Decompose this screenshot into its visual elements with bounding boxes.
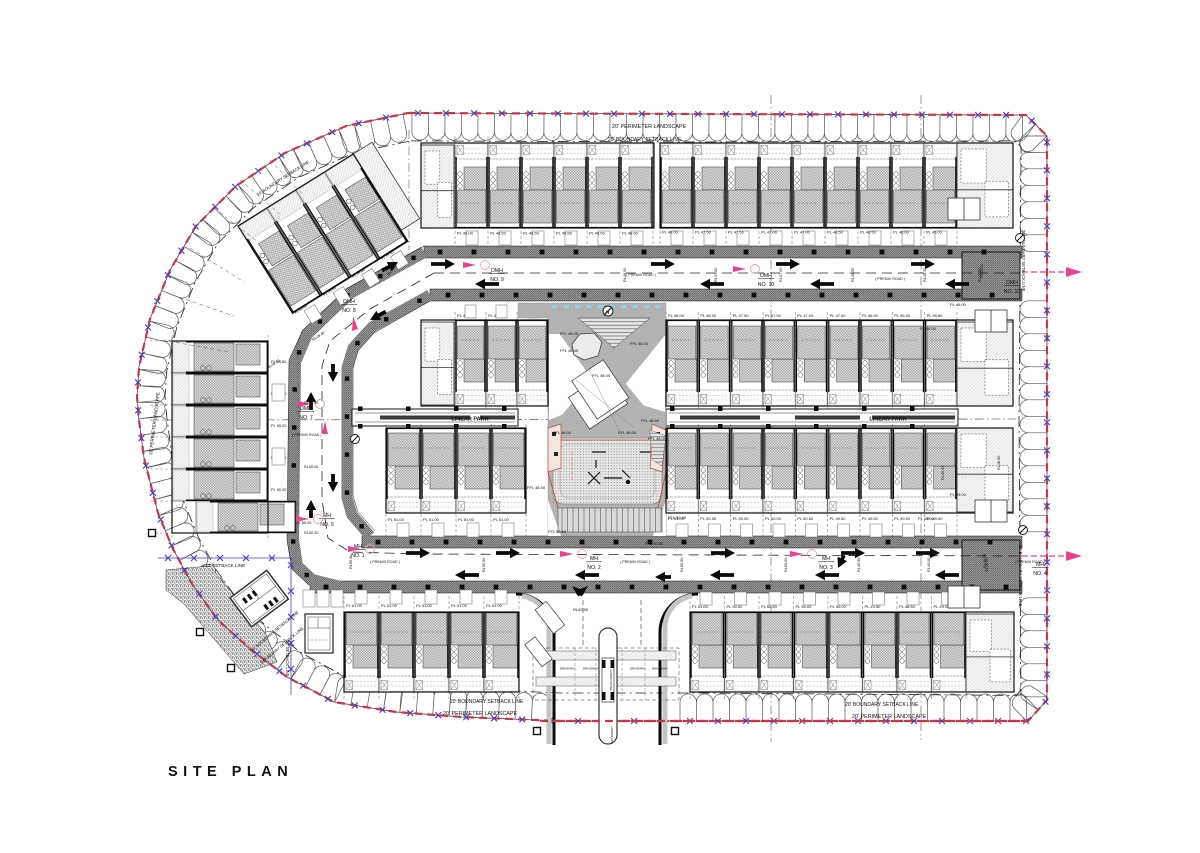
svg-text:LANDSCAPE: LANDSCAPE xyxy=(610,727,614,744)
svg-text:PL 46.50: PL 46.50 xyxy=(860,230,877,235)
svg-text:PL 48.50: PL 48.50 xyxy=(556,231,573,236)
svg-text:PL 46.50: PL 46.50 xyxy=(894,313,911,318)
svg-text:DRIVEWAY: DRIVEWAY xyxy=(652,667,668,671)
svg-text:PL 50.20: PL 50.20 xyxy=(271,423,287,428)
svg-text:20' BOUNDARY SETBACK LINE: 20' BOUNDARY SETBACK LINE xyxy=(608,137,682,143)
svg-text:PL 48.50: PL 48.50 xyxy=(589,231,606,236)
svg-text:RL49.80: RL49.80 xyxy=(304,401,318,405)
svg-text:FFL 50.50: FFL 50.50 xyxy=(645,541,664,546)
svg-text:DRIVEWAY: DRIVEWAY xyxy=(560,667,576,671)
svg-text:PL 45.00: PL 45.00 xyxy=(926,230,943,235)
svg-text:20' BOUNDARY SETBACK LINE: 20' BOUNDARY SETBACK LINE xyxy=(450,699,524,705)
svg-text:PL 47.50: PL 47.50 xyxy=(695,230,712,235)
svg-text:LINEAR PARK: LINEAR PARK xyxy=(869,417,906,423)
svg-text:PL 49.00: PL 49.00 xyxy=(894,516,911,521)
svg-text:PL 51.00: PL 51.00 xyxy=(458,517,475,522)
svg-text:PL 48.50: PL 48.50 xyxy=(523,231,540,236)
svg-text:PL 51.00: PL 51.00 xyxy=(423,517,440,522)
svg-text:RL50.00: RL50.00 xyxy=(304,465,318,469)
svg-text:PL 49.00: PL 49.00 xyxy=(950,492,967,497)
svg-text:FFL 48.00: FFL 48.00 xyxy=(553,430,572,435)
svg-text:RL49.00: RL49.00 xyxy=(927,558,931,572)
svg-text:PL 48.00: PL 48.00 xyxy=(700,313,717,318)
svg-text:FFL 48.00: FFL 48.00 xyxy=(648,436,667,441)
svg-text:RL50.50: RL50.50 xyxy=(482,558,486,572)
svg-text:PL 50.50: PL 50.50 xyxy=(700,516,717,521)
svg-text:DMH: DMH xyxy=(760,273,772,279)
svg-text:LINEAR PARK: LINEAR PARK xyxy=(451,417,488,423)
svg-text:FFL 50.50: FFL 50.50 xyxy=(548,529,567,534)
svg-text:PL 46.50: PL 46.50 xyxy=(862,313,879,318)
svg-text:20' BOUNDARY SETBACK LINE: 20' BOUNDARY SETBACK LINE xyxy=(1018,545,1023,607)
svg-text:FFL 48.45: FFL 48.45 xyxy=(560,348,579,353)
svg-text:NO. 10: NO. 10 xyxy=(758,282,775,288)
svg-text:PL 50.50: PL 50.50 xyxy=(733,516,750,521)
svg-text:FFL 48.00: FFL 48.00 xyxy=(630,341,649,346)
svg-text:FFL 48.00: FFL 48.00 xyxy=(527,485,546,490)
svg-text:PL 46.00: PL 46.00 xyxy=(893,230,910,235)
svg-text:PL 47.00: PL 47.00 xyxy=(830,313,847,318)
svg-text:RL50.30: RL50.30 xyxy=(304,531,318,535)
svg-text:20' PERIMETER LANDSCAPE: 20' PERIMETER LANDSCAPE xyxy=(443,711,518,717)
svg-text:( PREMIX ROAD ): ( PREMIX ROAD ) xyxy=(875,277,905,281)
svg-text:PL 46.00: PL 46.00 xyxy=(950,302,967,307)
svg-text:DRIVEWAY: DRIVEWAY xyxy=(630,667,646,671)
svg-text:RL48.00: RL48.00 xyxy=(623,268,627,282)
svg-text:PL 50.00: PL 50.00 xyxy=(797,516,814,521)
svg-text:RL50.90: RL50.90 xyxy=(941,466,945,480)
svg-text:GUARD HOUSE: GUARD HOUSE xyxy=(609,670,613,691)
svg-text:PL 46.00: PL 46.00 xyxy=(920,326,937,331)
svg-text:PL 49.00: PL 49.00 xyxy=(918,516,935,521)
svg-text:NO. 8: NO. 8 xyxy=(342,308,356,314)
svg-text:N: N xyxy=(606,310,609,315)
svg-text:DMH: DMH xyxy=(343,299,355,305)
svg-text:PL 47.50: PL 47.50 xyxy=(765,313,782,318)
svg-text:FFL 48.00: FFL 48.00 xyxy=(560,331,579,336)
svg-text:10' SETBACK LINE: 10' SETBACK LINE xyxy=(205,563,245,568)
svg-text:PL 50.00: PL 50.00 xyxy=(765,516,782,521)
svg-text:NO. 2: NO. 2 xyxy=(587,565,601,571)
svg-text:RL47.50: RL47.50 xyxy=(714,268,718,282)
svg-text:RL50.50: RL50.50 xyxy=(680,558,684,572)
svg-text:NO. 9: NO. 9 xyxy=(490,277,504,283)
svg-text:PL 46.50: PL 46.50 xyxy=(827,230,844,235)
svg-text:PL 50.50: PL 50.50 xyxy=(271,487,287,492)
svg-text:RL45.00: RL45.00 xyxy=(980,264,984,278)
svg-text:NO. 1: NO. 1 xyxy=(351,553,365,559)
svg-text:10' SETBACK LINE: 10' SETBACK LINE xyxy=(285,640,290,677)
svg-text:PL 48.00: PL 48.00 xyxy=(668,313,685,318)
svg-text:RL50.50: RL50.50 xyxy=(573,607,589,612)
svg-text:( PREMIX ROAD ): ( PREMIX ROAD ) xyxy=(292,433,322,437)
svg-text:PL 47.00: PL 47.00 xyxy=(797,313,814,318)
svg-text:20' PERIMETER LANDSCAPE: 20' PERIMETER LANDSCAPE xyxy=(852,714,927,720)
svg-text:( PREMIX ROAD ): ( PREMIX ROAD ) xyxy=(626,273,656,277)
svg-text:( PREMIX ROAD ): ( PREMIX ROAD ) xyxy=(620,560,650,564)
svg-text:PL 48.00: PL 48.00 xyxy=(457,231,474,236)
svg-text:RL46.50: RL46.50 xyxy=(851,268,855,282)
svg-text:FFL 48.00: FFL 48.00 xyxy=(618,430,637,435)
svg-text:NO. 10: NO. 10 xyxy=(1004,289,1021,295)
svg-text:PL 45.80: PL 45.80 xyxy=(927,313,944,318)
svg-text:DMH: DMH xyxy=(1006,280,1018,286)
svg-text:RL49.50: RL49.50 xyxy=(857,558,861,572)
svg-text:PL 48.50: PL 48.50 xyxy=(490,231,507,236)
svg-text:PL 51.00: PL 51.00 xyxy=(388,517,405,522)
svg-text:RL46.30: RL46.30 xyxy=(923,268,927,282)
svg-text:PL 47.00: PL 47.00 xyxy=(794,230,811,235)
svg-text:PL 51.00: PL 51.00 xyxy=(493,517,510,522)
svg-text:FFL 50.50: FFL 50.50 xyxy=(668,515,687,520)
svg-text:MH: MH xyxy=(590,556,598,562)
svg-text:MH: MH xyxy=(323,513,331,519)
svg-text:SITE PLAN: SITE PLAN xyxy=(168,764,293,780)
svg-text:DRIVEWAY: DRIVEWAY xyxy=(583,667,599,671)
svg-text:PL 47.50: PL 47.50 xyxy=(728,230,745,235)
svg-text:DMH: DMH xyxy=(300,406,312,412)
svg-text:PL 48.00: PL 48.00 xyxy=(662,230,679,235)
svg-text:20' BOUNDARY SETBACK LINE: 20' BOUNDARY SETBACK LINE xyxy=(845,702,919,708)
svg-text:PL 47.00: PL 47.00 xyxy=(761,230,778,235)
svg-text:RL48.50: RL48.50 xyxy=(983,554,987,568)
svg-text:( PREMIX ROAD ): ( PREMIX ROAD ) xyxy=(370,560,400,564)
svg-text:MH: MH xyxy=(822,556,830,562)
svg-text:PL 48.50: PL 48.50 xyxy=(622,231,639,236)
svg-text:RL48.50: RL48.50 xyxy=(997,456,1001,470)
svg-text:RL50.00: RL50.00 xyxy=(784,558,788,572)
svg-text:NO. 7: NO. 7 xyxy=(299,415,313,421)
svg-text:PL 47.50: PL 47.50 xyxy=(733,313,750,318)
svg-text:PL 49.50: PL 49.50 xyxy=(830,516,847,521)
svg-text:NO. 6: NO. 6 xyxy=(320,522,334,528)
svg-text:NO. 3: NO. 3 xyxy=(819,565,833,571)
svg-text:20' PERIMETER LANDSCAPE: 20' PERIMETER LANDSCAPE xyxy=(612,124,687,130)
svg-text:FFL 48.00: FFL 48.00 xyxy=(641,418,660,423)
svg-text:DMH: DMH xyxy=(491,268,503,274)
svg-text:PL 49.50: PL 49.50 xyxy=(862,516,879,521)
svg-text:RL47.00: RL47.00 xyxy=(779,268,783,282)
svg-text:FFL 48.00: FFL 48.00 xyxy=(592,373,611,378)
svg-text:NO. 4: NO. 4 xyxy=(1033,571,1047,577)
svg-text:RL50.90: RL50.90 xyxy=(349,555,353,569)
